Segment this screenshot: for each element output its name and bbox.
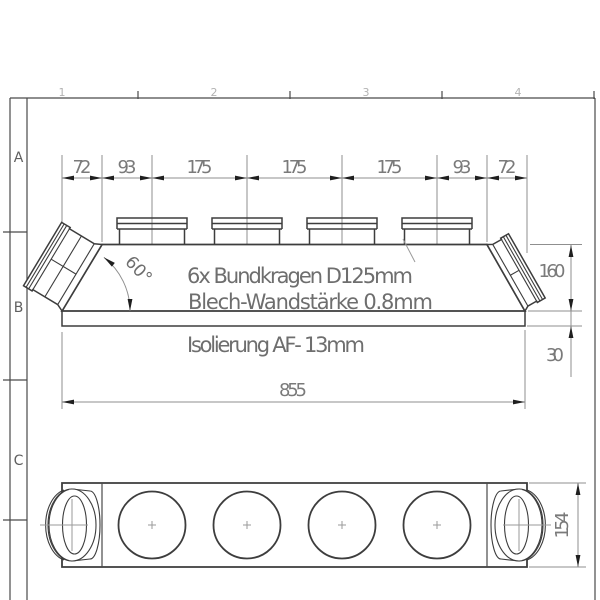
- dim-depth: 154: [552, 512, 573, 539]
- column-label-4: 4: [515, 86, 522, 99]
- dim-chain-93-right: 93: [453, 157, 472, 178]
- dim-chain-175-3: 175: [377, 157, 403, 178]
- row-label-c: C: [14, 453, 24, 469]
- column-label-2: 2: [211, 86, 218, 99]
- dim-chain-72-left: 72: [73, 157, 92, 178]
- technical-drawing: 1 2 3 4 A B C: [0, 0, 600, 600]
- dim-overall-length: 855: [279, 380, 307, 401]
- height-dimensions: 160 30: [527, 245, 582, 378]
- top-dimension-chain: 72 93 175 175 175 93 72: [62, 155, 527, 253]
- row-label-b: B: [14, 300, 24, 316]
- dim-chain-175-2: 175: [282, 157, 308, 178]
- plan-right-connector: [491, 489, 551, 561]
- plan-body: [62, 483, 527, 567]
- column-label-1: 1: [59, 86, 66, 99]
- row-label-a: A: [14, 150, 24, 166]
- dim-chain-93-left: 93: [118, 157, 137, 178]
- side-view: 60° 6x Bundkragen D125mm Blech-Wandstärk…: [23, 218, 546, 357]
- plan-view: [40, 483, 551, 567]
- note-insulation: Isolierung AF- 13mm: [187, 333, 365, 357]
- dim-chain-175-1: 175: [187, 157, 213, 178]
- dim-insulation-offset: 30: [546, 345, 564, 366]
- note-collars: 6x Bundkragen D125mm: [187, 264, 413, 288]
- drawing-page: 1 2 3 4 A B C: [0, 0, 600, 600]
- column-label-3: 3: [363, 86, 370, 99]
- dim-body-height: 160: [539, 261, 566, 282]
- dim-chain-72-right: 72: [498, 157, 517, 178]
- frame-row-dividers: [3, 232, 27, 520]
- note-sheet: Blech-Wandstärke 0.8mm: [188, 290, 433, 314]
- plan-left-connector: [40, 489, 100, 561]
